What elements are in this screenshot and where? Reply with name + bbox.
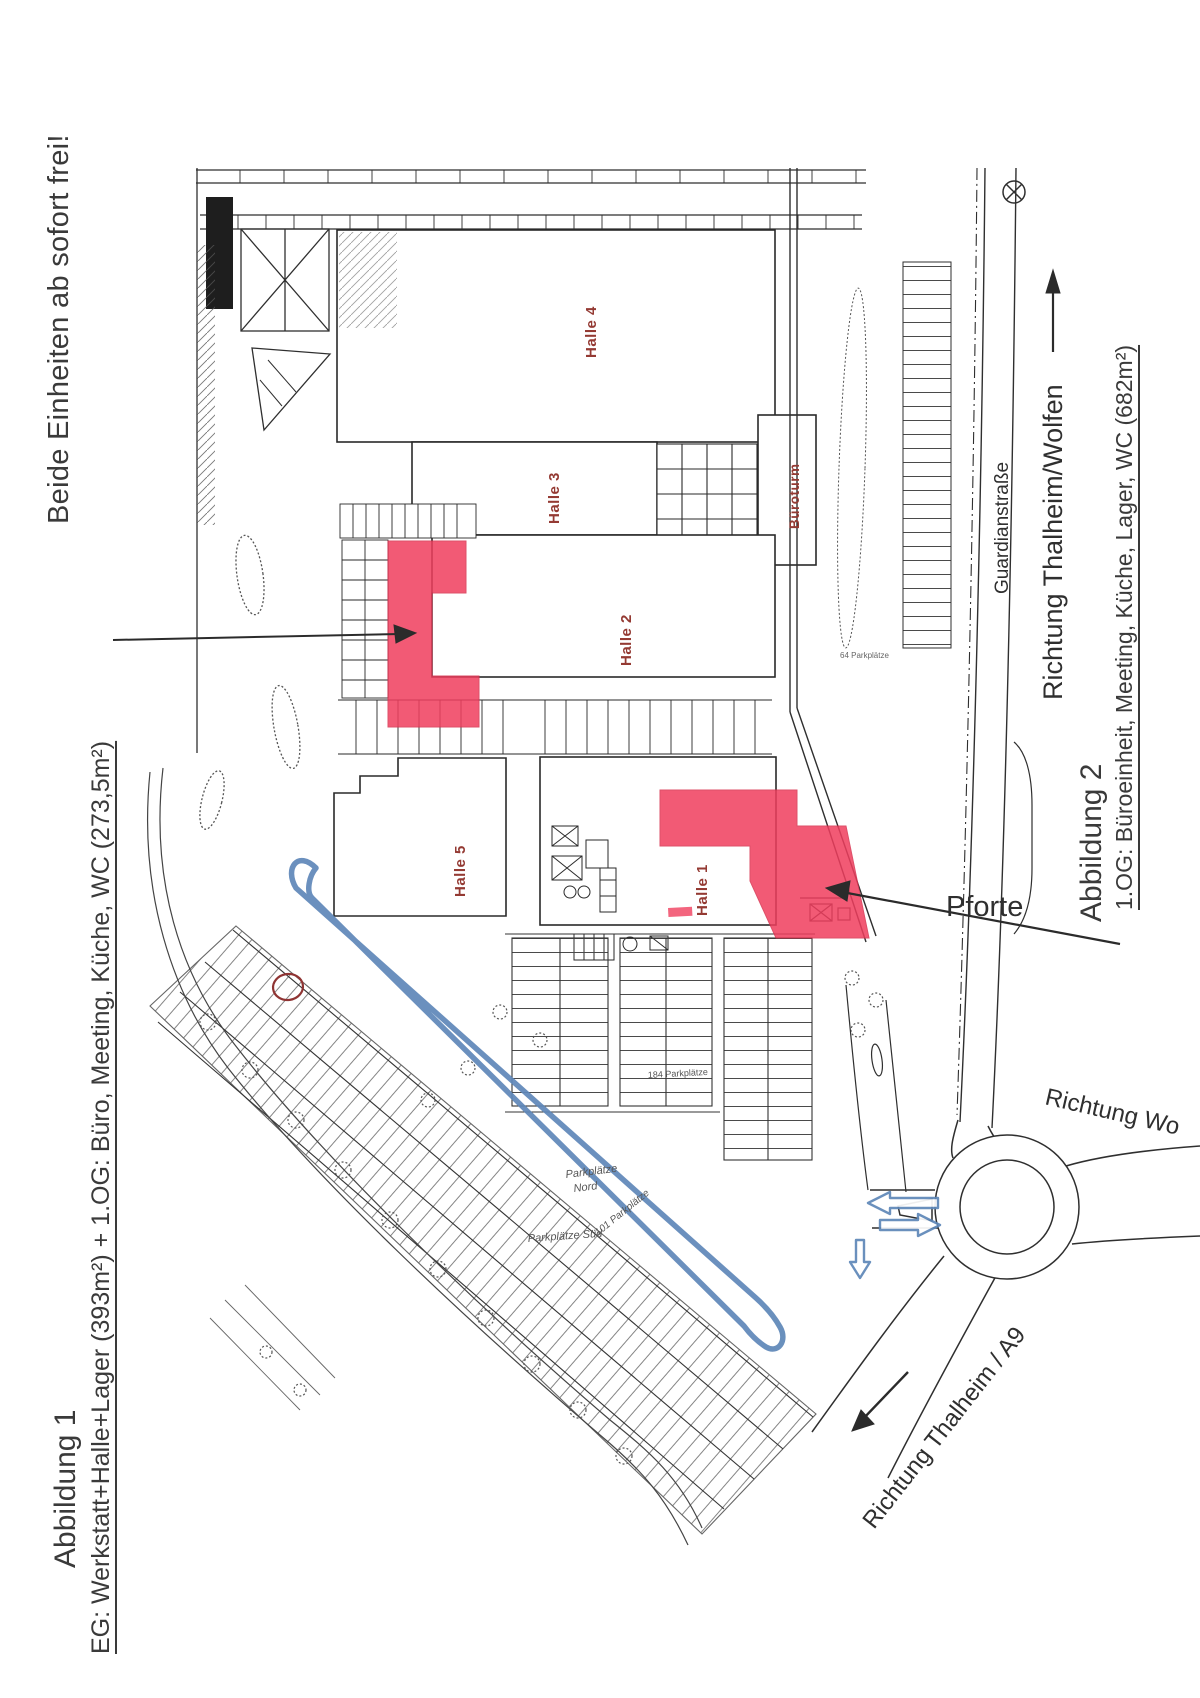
blue-arrow-down: [850, 1240, 870, 1278]
parking-nord-label-2: Nord: [573, 1180, 599, 1195]
gabled-shed: [241, 229, 329, 331]
parking-101-label: 101 Parkplätze: [593, 1188, 652, 1239]
halle-4-outline: [337, 230, 775, 442]
grid-annex: [657, 444, 757, 544]
hedge-along-street: [833, 288, 872, 649]
parking-64-label: 64 Parkplätze: [840, 651, 889, 660]
blue-arrow-left: [868, 1192, 938, 1214]
wolfen-direction-arrowhead: [1046, 270, 1060, 293]
halle-4-label: Halle 4: [583, 306, 600, 358]
north-symbol: [1003, 181, 1025, 203]
richtung-thalheim-a9-label: Richtung Thalheim / A9: [857, 1322, 1031, 1534]
hedge-strip: [195, 768, 229, 831]
halle-2-label: Halle 2: [618, 614, 635, 666]
red-mark-small: [668, 907, 692, 917]
a9-direction-arrow-shaft: [862, 1372, 908, 1420]
halle-3-label: Halle 3: [546, 472, 563, 524]
guardianstrasse-label: Guardianstraße: [992, 462, 1013, 594]
site-plan: Halle 4 Halle 3 Halle 2 Halle 5 Halle 1 …: [0, 0, 1200, 1698]
street-parking-row: [903, 262, 951, 648]
halle-5-label: Halle 5: [452, 845, 469, 897]
hedge-strip: [267, 684, 305, 771]
hatched-wedge: [252, 348, 330, 430]
richtung-thalheim-wolfen-label: Richtung Thalheim/Wolfen: [1038, 384, 1068, 700]
halle-2-outline: [432, 535, 775, 677]
central-parking: [505, 934, 815, 1160]
guardianstrasse-west-kerb: [960, 168, 985, 1122]
bueroturm-label: Büroturm: [787, 464, 802, 530]
a9-direction-arrowhead: [852, 1410, 874, 1431]
halle-1-label: Halle 1: [694, 864, 711, 916]
halle-5-outline: [334, 758, 506, 916]
richtung-wolfen-label: Richtung Wo: [1043, 1084, 1183, 1141]
gate-area: [800, 898, 906, 1192]
east-edge-and-street: [790, 168, 1032, 1128]
pforte-label: Pforte: [946, 891, 1023, 923]
guardianstrasse-east-kerb: [992, 168, 1016, 1128]
hedge-strip: [232, 534, 269, 617]
diagonal-parking: [150, 926, 816, 1534]
scanned-site-plan-page: Beide Einheiten ab sofort frei! Abbildun…: [0, 0, 1200, 1698]
